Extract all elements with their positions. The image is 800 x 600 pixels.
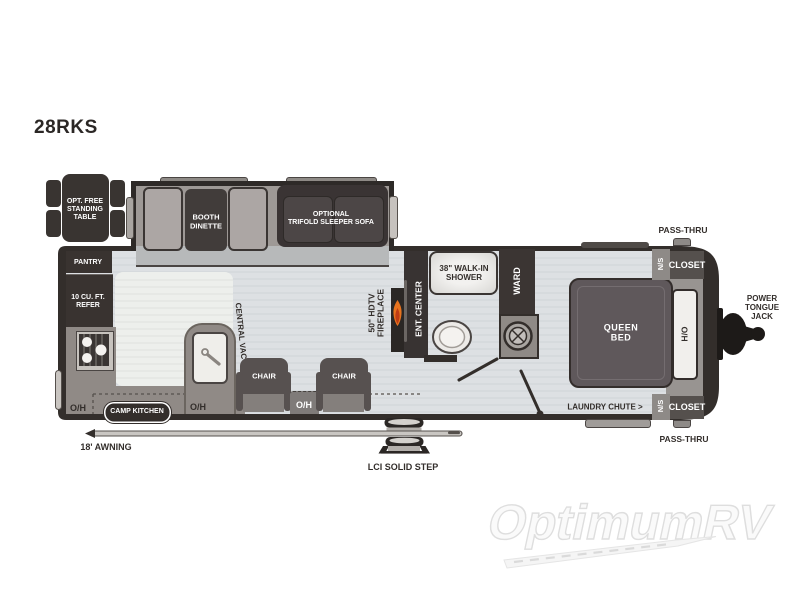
svg-text:OptimumRV: OptimumRV bbox=[483, 494, 777, 549]
